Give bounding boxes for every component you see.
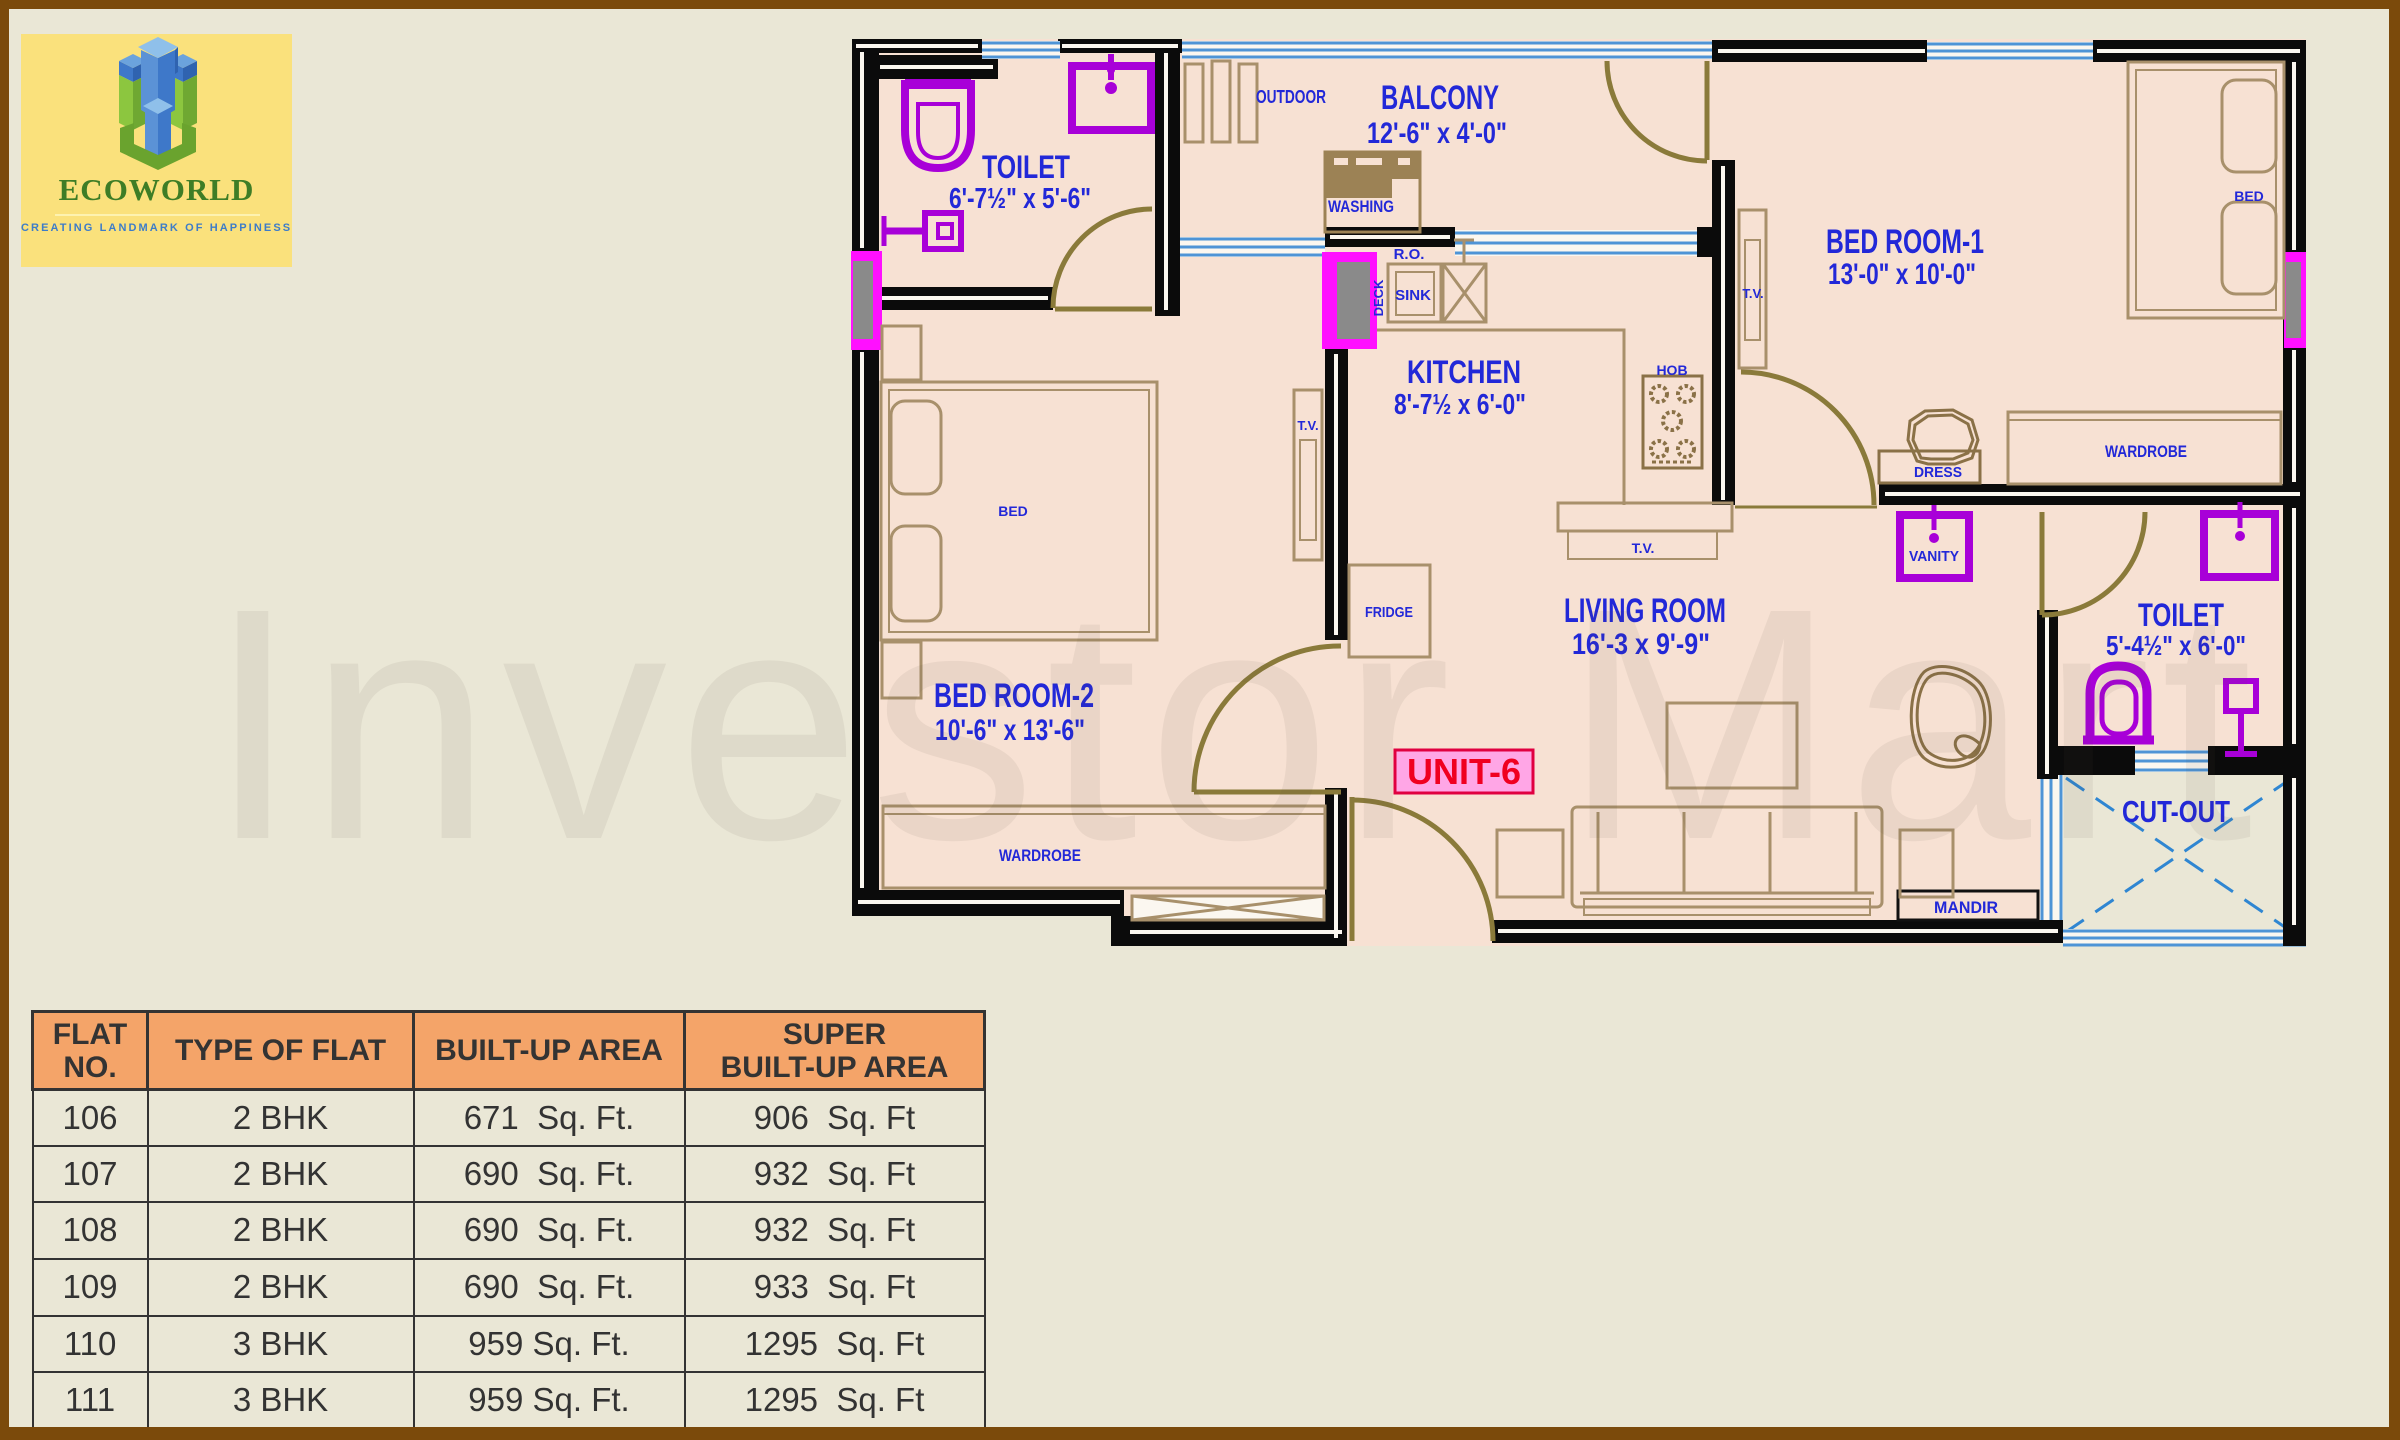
svg-text:BED: BED (2234, 188, 2264, 204)
svg-text:R.O.: R.O. (1394, 246, 1425, 263)
svg-text:13'-0" x 10'-0": 13'-0" x 10'-0" (1828, 258, 1976, 291)
svg-text:KITCHEN: KITCHEN (1407, 354, 1521, 390)
svg-text:SINK: SINK (1395, 287, 1431, 304)
svg-text:BED: BED (998, 503, 1028, 519)
svg-text:BED ROOM-1: BED ROOM-1 (1826, 223, 1984, 261)
svg-text:6'-7½" x 5'-6": 6'-7½" x 5'-6" (949, 183, 1091, 215)
svg-text:T.V.: T.V. (1742, 286, 1763, 301)
svg-text:TOILET: TOILET (982, 149, 1070, 185)
svg-text:DECK: DECK (1371, 279, 1386, 316)
svg-text:DRESS: DRESS (1914, 464, 1962, 481)
svg-text:HOB: HOB (1656, 362, 1687, 378)
svg-text:BALCONY: BALCONY (1381, 79, 1499, 117)
svg-text:WASHING: WASHING (1328, 197, 1394, 216)
svg-text:12'-6" x 4'-0": 12'-6" x 4'-0" (1367, 117, 1507, 150)
svg-text:WARDROBE: WARDROBE (2105, 442, 2187, 461)
svg-text:8'-7½ x 6'-0": 8'-7½ x 6'-0" (1394, 389, 1526, 421)
svg-text:OUTDOOR: OUTDOOR (1256, 87, 1326, 107)
svg-text:T.V.: T.V. (1297, 418, 1318, 433)
